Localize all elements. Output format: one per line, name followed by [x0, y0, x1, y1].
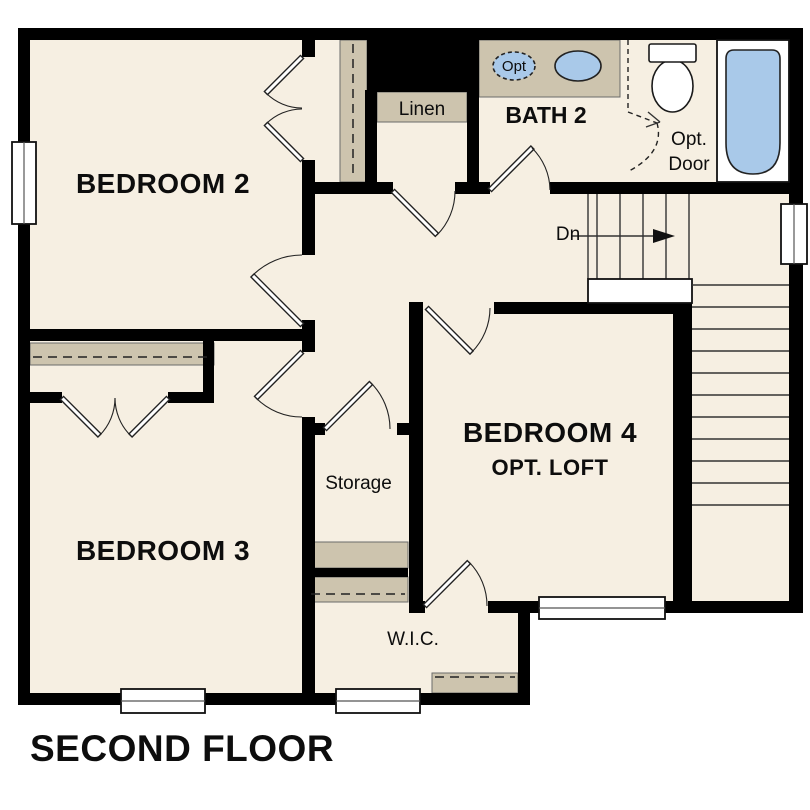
- optional-sink-label: Opt: [494, 58, 534, 75]
- window: [12, 142, 36, 224]
- linen-label: Linen: [377, 99, 467, 121]
- wic-top-shelf: [308, 577, 408, 602]
- stairs-down-label: Dn: [547, 224, 589, 246]
- chase: [367, 40, 479, 92]
- toilet-icon: [652, 60, 693, 112]
- bedroom4-label: BEDROOM 4: [428, 417, 672, 449]
- floor-plan: BEDROOM 2 BEDROOM 3 BEDROOM 4 OPT. LOFT …: [0, 0, 810, 810]
- window: [121, 689, 205, 713]
- sink-icon: [555, 51, 601, 81]
- storage-label: Storage: [309, 473, 408, 495]
- window: [781, 204, 807, 264]
- wic-label: W.I.C.: [363, 629, 463, 651]
- bathtub-icon: [726, 50, 780, 174]
- optional-door-label-line2: Door: [650, 154, 728, 176]
- bedroom2-label: BEDROOM 2: [40, 168, 286, 200]
- storage-shelf: [308, 542, 408, 568]
- bedroom4-sublabel: OPT. LOFT: [428, 455, 672, 481]
- bedroom3-label: BEDROOM 3: [40, 535, 286, 567]
- toilet-tank-icon: [649, 44, 696, 62]
- bath2-label: BATH 2: [482, 102, 610, 129]
- floor-plan-drawing: [0, 0, 810, 810]
- window: [539, 597, 665, 619]
- wic-bottom-shelf: [432, 673, 518, 693]
- stair-landing: [588, 279, 692, 303]
- page-title: SECOND FLOOR: [30, 728, 430, 770]
- bedroom3-closet-shelf: [30, 343, 214, 365]
- window: [336, 689, 420, 713]
- optional-door-label-line1: Opt.: [650, 129, 728, 151]
